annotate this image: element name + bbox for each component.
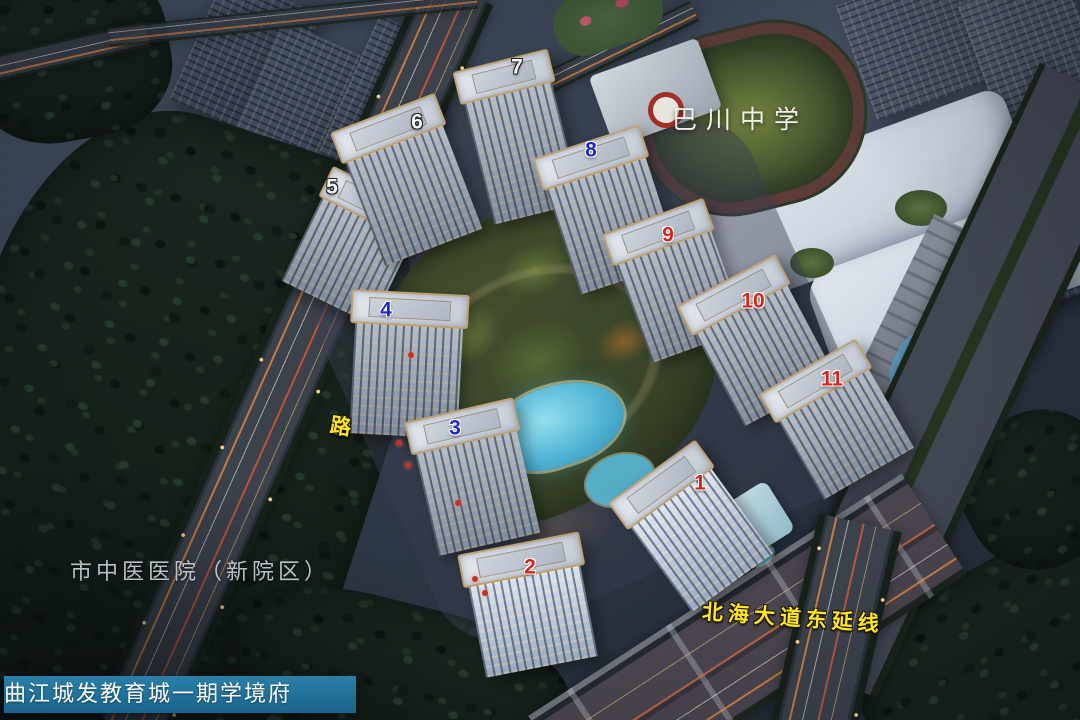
label-bazhong-char: 路 (329, 414, 353, 438)
umbrella-dot (482, 590, 488, 596)
building-marker-8: 8 (585, 140, 597, 161)
project-title-banner: 曲江城发教育城一期学境府 (4, 676, 356, 713)
umbrella-dot (455, 500, 461, 506)
building-marker-3: 3 (449, 418, 461, 439)
umbrella-dot (405, 462, 411, 468)
building-marker-4: 4 (380, 300, 392, 321)
building-marker-9: 9 (662, 225, 674, 246)
building-marker-6: 6 (411, 112, 423, 133)
building-marker-10: 10 (741, 291, 764, 312)
aerial-masterplan-render: 1 2 3 4 5 6 7 8 9 10 11 巴川中学 市中医医院（新院区） … (0, 0, 1080, 720)
building-marker-7: 7 (511, 57, 523, 78)
project-title-text: 曲江城发教育城一期学境府 (4, 676, 292, 713)
building-marker-11: 11 (821, 369, 843, 390)
building-marker-1: 1 (694, 473, 706, 494)
building-marker-2: 2 (524, 557, 536, 578)
label-tcm-hospital: 市中医医院（新院区） (70, 554, 330, 586)
umbrella-dot (408, 352, 414, 358)
tower-2 (457, 531, 603, 678)
label-bachuan-school: 巴川中学 (672, 100, 808, 136)
umbrella-dot (396, 440, 402, 446)
umbrella-dot (472, 576, 478, 582)
building-marker-5: 5 (326, 177, 338, 198)
